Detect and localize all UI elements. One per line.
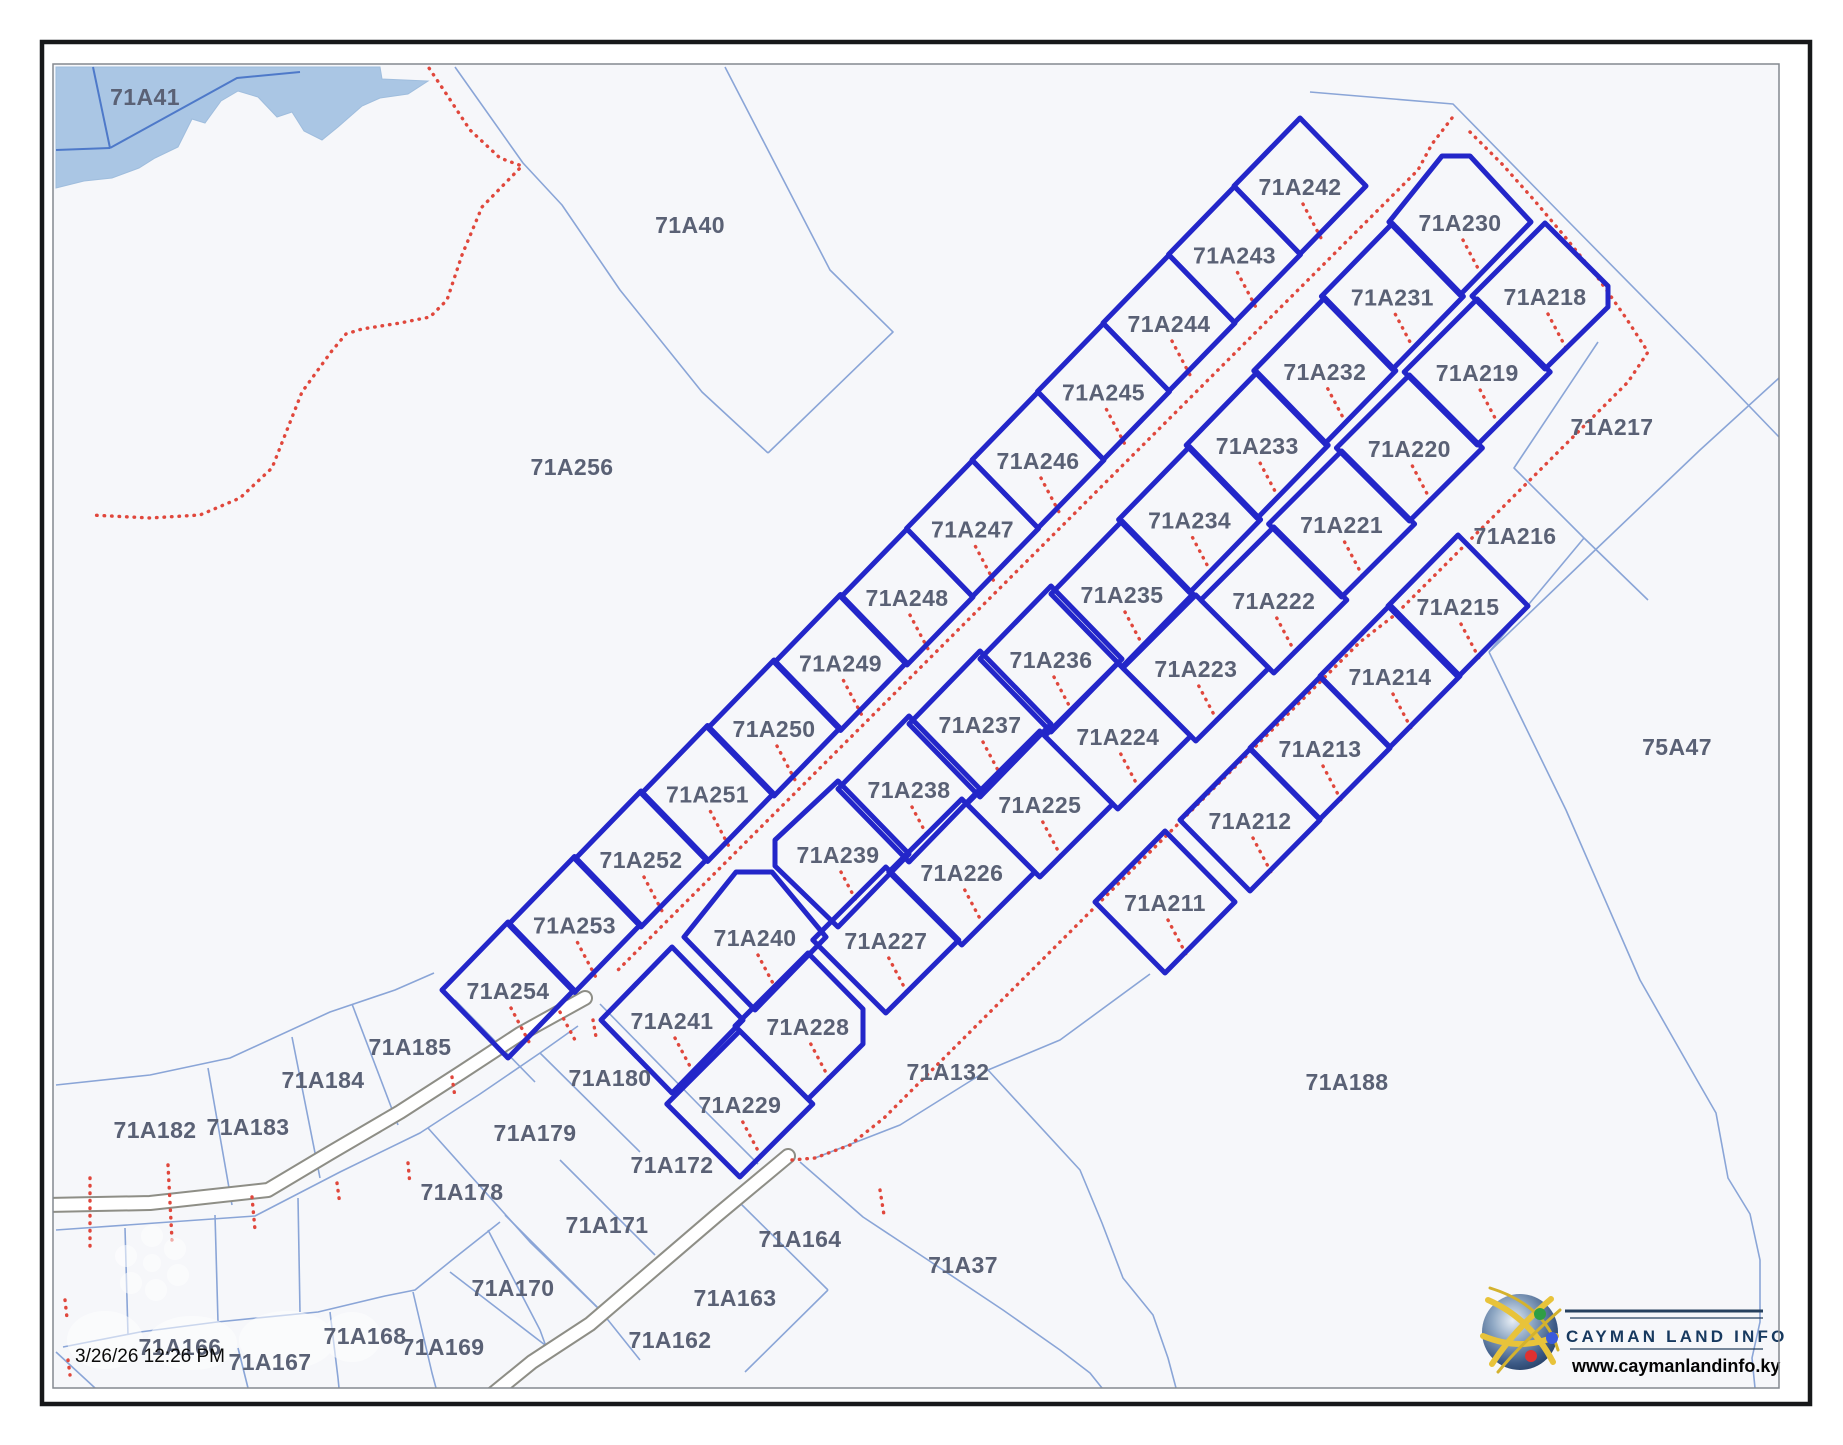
parcel-label-71A211: 71A211 bbox=[1124, 890, 1206, 916]
parcel-label-71A234: 71A234 bbox=[1148, 508, 1231, 534]
timestamp: 3/26/26 12:26 PM bbox=[75, 1346, 225, 1367]
parcel-label-71A182: 71A182 bbox=[114, 1117, 197, 1143]
parcel-label-71A230: 71A230 bbox=[1419, 210, 1502, 236]
parcel-label-71A220: 71A220 bbox=[1368, 436, 1451, 462]
parcel-label-71A188: 71A188 bbox=[1306, 1069, 1389, 1095]
parcel-label-75A47: 75A47 bbox=[1642, 734, 1712, 760]
parcel-label-71A246: 71A246 bbox=[997, 448, 1080, 474]
parcel-label-71A235: 71A235 bbox=[1081, 582, 1164, 608]
parcel-label-71A214: 71A214 bbox=[1349, 664, 1432, 690]
parcel-label-71A237: 71A237 bbox=[939, 712, 1022, 738]
parcel-label-71A241: 71A241 bbox=[631, 1008, 714, 1034]
parcel-label-71A171: 71A171 bbox=[566, 1212, 649, 1238]
map-window: 71A24271A24371A24471A24571A24671A24771A2… bbox=[0, 0, 1843, 1445]
parcel-label-71A238: 71A238 bbox=[868, 777, 951, 803]
parcel-label-71A213: 71A213 bbox=[1279, 736, 1362, 762]
parcel-label-71A222: 71A222 bbox=[1232, 588, 1315, 614]
parcel-label-71A253: 71A253 bbox=[533, 913, 616, 939]
parcel-label-71A221: 71A221 bbox=[1300, 512, 1383, 538]
parcel-label-71A216: 71A216 bbox=[1474, 523, 1557, 549]
parcel-label-71A132: 71A132 bbox=[907, 1059, 990, 1085]
parcel-label-71A236: 71A236 bbox=[1010, 647, 1093, 673]
logo-url-text: www.caymanlandinfo.ky bbox=[1571, 1356, 1780, 1376]
parcel-label-71A247: 71A247 bbox=[931, 517, 1014, 543]
parcel-label-71A212: 71A212 bbox=[1209, 808, 1292, 834]
parcel-label-71A223: 71A223 bbox=[1154, 656, 1237, 682]
parcel-label-71A243: 71A243 bbox=[1193, 243, 1276, 269]
cayman-land-info-globe-icon bbox=[1482, 1288, 1560, 1372]
parcel-label-71A215: 71A215 bbox=[1417, 594, 1500, 620]
parcel-label-71A249: 71A249 bbox=[799, 651, 882, 677]
parcel-label-71A185: 71A185 bbox=[369, 1034, 452, 1060]
parcel-label-71A184: 71A184 bbox=[282, 1067, 365, 1093]
parcel-label-71A239: 71A239 bbox=[797, 842, 880, 868]
parcel-label-71A180: 71A180 bbox=[569, 1065, 652, 1091]
parcel-label-71A244: 71A244 bbox=[1128, 311, 1211, 337]
parcel-label-71A254: 71A254 bbox=[467, 978, 550, 1004]
parcel-label-71A252: 71A252 bbox=[600, 847, 683, 873]
parcel-label-71A172: 71A172 bbox=[631, 1152, 714, 1178]
parcel-label-71A218: 71A218 bbox=[1504, 284, 1587, 310]
parcel-label-71A178: 71A178 bbox=[421, 1179, 504, 1205]
parcel-label-71A229: 71A229 bbox=[698, 1092, 781, 1118]
parcel-label-71A227: 71A227 bbox=[844, 928, 927, 954]
parcel-label-71A169: 71A169 bbox=[402, 1334, 485, 1360]
parcel-label-71A40: 71A40 bbox=[655, 212, 725, 238]
cadastral-map-canvas[interactable]: 71A24271A24371A24471A24571A24671A24771A2… bbox=[0, 0, 1843, 1445]
parcel-label-71A37: 71A37 bbox=[928, 1252, 998, 1278]
parcel-label-71A163: 71A163 bbox=[694, 1285, 777, 1311]
parcel-label-71A245: 71A245 bbox=[1062, 380, 1145, 406]
parcel-label-71A41: 71A41 bbox=[110, 84, 180, 110]
parcel-label-71A164: 71A164 bbox=[759, 1226, 842, 1252]
parcel-label-71A242: 71A242 bbox=[1259, 174, 1342, 200]
parcel-label-71A233: 71A233 bbox=[1216, 433, 1299, 459]
parcel-label-71A250: 71A250 bbox=[733, 716, 816, 742]
parcel-label-71A240: 71A240 bbox=[714, 925, 797, 951]
parcel-label-71A251: 71A251 bbox=[666, 782, 749, 808]
parcel-label-71A168: 71A168 bbox=[324, 1323, 407, 1349]
parcel-label-71A256: 71A256 bbox=[531, 454, 614, 480]
parcel-label-71A226: 71A226 bbox=[920, 860, 1003, 886]
parcel-label-71A232: 71A232 bbox=[1283, 359, 1366, 385]
parcel-label-71A225: 71A225 bbox=[998, 792, 1081, 818]
parcel-label-71A219: 71A219 bbox=[1436, 360, 1519, 386]
parcel-label-71A162: 71A162 bbox=[629, 1327, 712, 1353]
parcel-label-71A248: 71A248 bbox=[866, 585, 949, 611]
parcel-label-71A170: 71A170 bbox=[472, 1275, 555, 1301]
parcel-label-71A231: 71A231 bbox=[1351, 284, 1434, 310]
parcel-label-71A167: 71A167 bbox=[229, 1349, 312, 1375]
parcel-label-71A217: 71A217 bbox=[1571, 414, 1654, 440]
logo-brand-text: CAYMAN LAND INFO bbox=[1566, 1327, 1788, 1346]
parcel-label-71A179: 71A179 bbox=[494, 1120, 577, 1146]
parcel-label-71A228: 71A228 bbox=[766, 1014, 849, 1040]
parcel-label-71A224: 71A224 bbox=[1076, 724, 1159, 750]
parcel-label-71A183: 71A183 bbox=[207, 1114, 290, 1140]
